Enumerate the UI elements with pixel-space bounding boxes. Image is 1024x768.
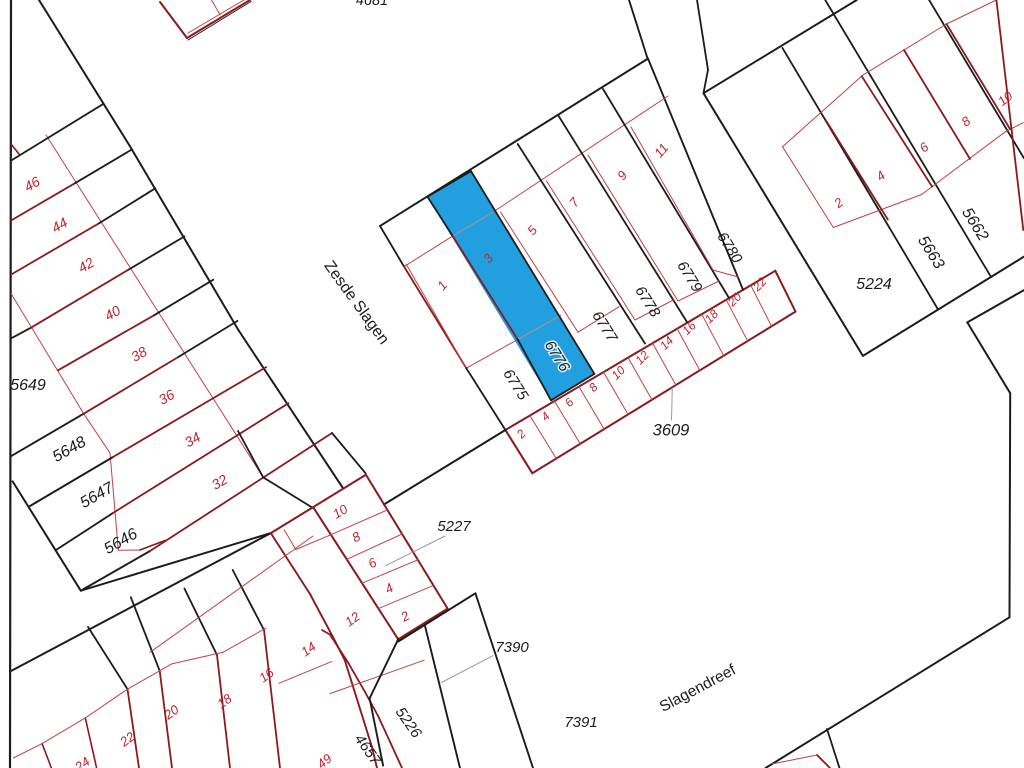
svg-text:49: 49 xyxy=(314,751,335,768)
svg-text:1: 1 xyxy=(434,278,450,293)
svg-text:8: 8 xyxy=(586,380,601,395)
svg-text:3609: 3609 xyxy=(653,421,690,439)
svg-text:Zesde Slagen: Zesde Slagen xyxy=(320,258,392,348)
svg-text:10: 10 xyxy=(609,363,629,383)
svg-text:5227: 5227 xyxy=(437,518,471,535)
svg-text:4: 4 xyxy=(873,168,888,184)
svg-text:32: 32 xyxy=(209,471,231,493)
svg-text:Slagendreef: Slagendreef xyxy=(657,661,739,716)
svg-text:18: 18 xyxy=(214,690,235,711)
svg-text:4: 4 xyxy=(538,409,553,424)
svg-text:8: 8 xyxy=(349,528,363,545)
svg-text:16: 16 xyxy=(679,318,699,338)
svg-text:34: 34 xyxy=(182,428,204,450)
svg-text:6: 6 xyxy=(365,554,379,571)
svg-text:7: 7 xyxy=(566,194,583,210)
svg-text:14: 14 xyxy=(298,639,319,660)
svg-text:22: 22 xyxy=(749,274,769,294)
svg-text:2: 2 xyxy=(830,194,846,211)
svg-text:5663: 5663 xyxy=(914,233,947,272)
svg-text:5647: 5647 xyxy=(77,479,117,512)
svg-text:6780: 6780 xyxy=(713,229,745,267)
svg-text:38: 38 xyxy=(128,343,150,365)
svg-text:24: 24 xyxy=(71,754,92,768)
svg-text:5226: 5226 xyxy=(392,704,425,742)
svg-text:20: 20 xyxy=(724,289,744,309)
svg-text:12: 12 xyxy=(632,348,652,368)
svg-text:6775: 6775 xyxy=(499,366,531,404)
svg-text:10: 10 xyxy=(330,501,351,522)
svg-text:7390: 7390 xyxy=(495,639,529,656)
svg-text:44: 44 xyxy=(49,214,71,236)
svg-text:36: 36 xyxy=(156,386,178,408)
svg-text:16: 16 xyxy=(256,664,277,685)
svg-text:12: 12 xyxy=(342,608,363,629)
svg-text:5662: 5662 xyxy=(958,205,991,244)
svg-text:11: 11 xyxy=(651,140,671,160)
svg-text:5646: 5646 xyxy=(101,525,140,558)
svg-text:6777: 6777 xyxy=(588,308,620,346)
svg-text:8: 8 xyxy=(958,113,974,130)
svg-text:46: 46 xyxy=(21,173,43,195)
svg-text:5648: 5648 xyxy=(50,433,89,466)
svg-text:42: 42 xyxy=(75,254,97,276)
svg-text:10: 10 xyxy=(995,88,1016,109)
svg-text:6: 6 xyxy=(562,395,577,410)
svg-text:6: 6 xyxy=(916,139,932,156)
svg-text:9: 9 xyxy=(614,168,630,183)
svg-text:40: 40 xyxy=(102,302,124,324)
svg-text:5649: 5649 xyxy=(10,377,46,394)
svg-text:2: 2 xyxy=(397,608,412,625)
svg-text:18: 18 xyxy=(702,307,722,327)
svg-text:4: 4 xyxy=(382,580,396,597)
svg-text:7391: 7391 xyxy=(564,714,597,731)
svg-text:6778: 6778 xyxy=(631,283,663,321)
svg-text:2: 2 xyxy=(513,426,529,442)
svg-text:5: 5 xyxy=(524,222,541,238)
svg-text:14: 14 xyxy=(657,333,677,353)
svg-text:4681: 4681 xyxy=(356,0,388,9)
svg-text:22: 22 xyxy=(116,728,138,750)
svg-text:5224: 5224 xyxy=(856,276,892,293)
